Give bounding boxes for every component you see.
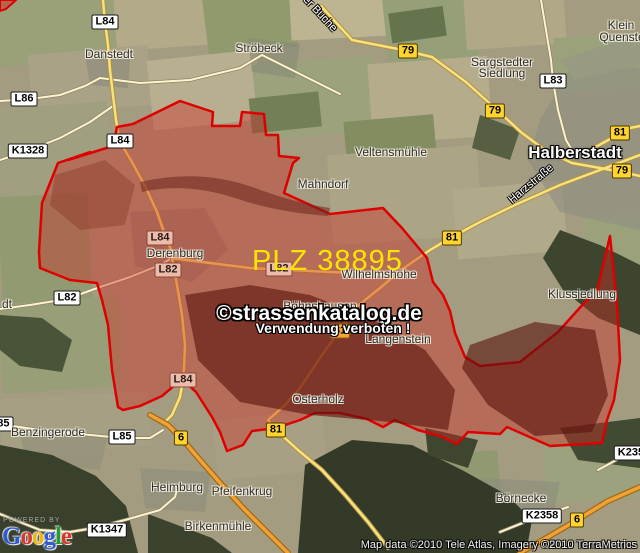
road-badge: L84 [170,373,197,388]
road-badge: L85 [109,430,136,445]
road-badge: 79 [398,44,418,59]
road-badge: K1347 [87,523,127,538]
town-label: Ströbeck [235,41,282,55]
town-label: Veltensmühle [355,145,427,159]
town-label: Derenburg [147,246,204,260]
town-label: Danstedt [85,47,133,61]
town-label: Heimburg [151,480,203,494]
road-badge: L83 [540,74,567,89]
road-badge: 6 [570,513,584,528]
town-label: Osterholz [292,392,343,406]
town-label: Pfeifenkrug [212,484,273,498]
google-logo-letter: g [43,523,55,550]
plz-code-label: PLZ 38895 [252,245,403,278]
road-badge: L82 [155,263,182,278]
road-badge: 81 [442,231,462,246]
map-attribution: Map data ©2010 Tele Atlas, Imagery ©2010… [361,539,637,551]
road-badge: K2358 [614,446,640,461]
road-badge: L84 [147,231,174,246]
road-badge: 79 [485,104,505,119]
google-logo-letter: G [2,523,20,550]
road-badge: K1328 [8,144,48,159]
neighbour-region-corner [0,0,16,11]
town-label: Benzingerode [11,425,85,439]
road-badge: L84 [92,15,119,30]
google-logo-letter: e [61,523,71,550]
map-canvas[interactable]: PLZ 38895 ©strassenkatalog.de Verwendung… [0,0,640,553]
road-badge: L82 [54,291,81,306]
town-label: Quenstedt [599,30,640,44]
road-badge: 79 [612,164,632,179]
google-logo-letter: o [32,523,44,550]
road-badge: K2358 [522,509,562,524]
town-label: Börnecke [496,491,547,505]
town-label: Klussiedlung [548,287,616,301]
google-logo[interactable]: Google [2,523,71,551]
road-badge: 81 [266,423,286,438]
town-label: Siedlung [479,66,526,80]
watermark-warning: Verwendung verboten ! [256,320,411,336]
road-badge: L84 [107,134,134,149]
city-label: Halberstadt [528,143,622,163]
town-label: dt [2,297,12,311]
town-label: Mahndorf [298,177,349,191]
road-badge: 81 [610,126,630,141]
town-label: Birkenmühle [185,519,252,533]
google-logo-letter: o [20,523,32,550]
road-badge: L86 [11,92,38,107]
road-badge: 6 [174,431,188,446]
